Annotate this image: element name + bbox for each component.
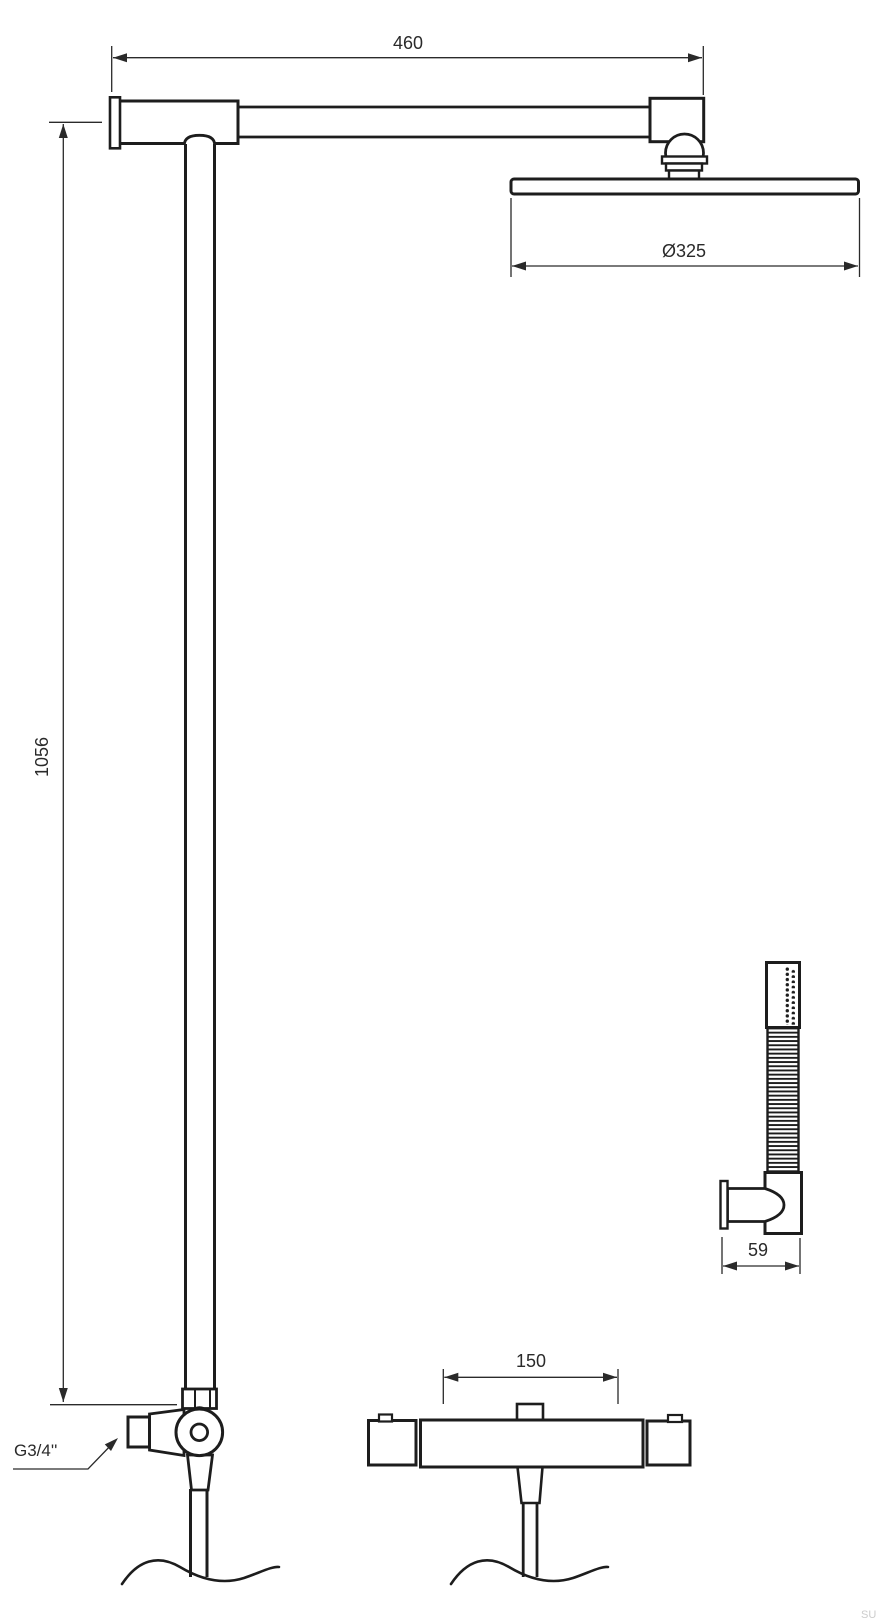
overhead-shower [511,134,859,194]
valve-lower-neck [188,1455,213,1490]
mixer-top-connector [517,1404,543,1421]
arrowhead-left-icon [723,1262,737,1271]
arrowhead-right-icon [785,1262,799,1271]
dimension-column-height-1056: 1056 [32,122,177,1404]
thermostatic-mixer [369,1404,691,1584]
diverter-valve-assembly [122,1389,279,1584]
label-g34-thread: G3/4'' [14,1441,57,1460]
dim-label-59: 59 [748,1240,768,1260]
arrowhead-down-icon [59,1388,68,1402]
dimension-head-diameter-325: Ø325 [511,198,860,277]
leader-connection-thread: G3/4'' [13,1438,118,1469]
dim-label-325: Ø325 [662,241,706,261]
dim-label-460: 460 [393,33,423,53]
riser-pipe [186,144,215,1390]
break-line-left [122,1560,279,1584]
mixer-lower-neck [518,1467,543,1503]
valve-center-hole [191,1424,208,1441]
shower-arm-assembly [110,97,704,148]
handshower-grip-ribs [767,1028,800,1173]
valve-nut [183,1389,217,1409]
arm-tee-body [119,101,238,144]
arrowhead-left-icon [444,1373,458,1382]
mixer-knob-right-tab [668,1415,682,1422]
mixer-knob-right [647,1421,690,1465]
dimension-mixer-150: 150 [443,1351,618,1404]
break-line-right [451,1560,608,1584]
valve-side-inlet [128,1417,150,1447]
wall-flange-top [110,97,120,148]
arrowhead-right-icon [603,1373,617,1382]
nozzle-dots-pattern [784,968,798,1026]
shower-head-plate [511,179,859,194]
mixer-knob-left [369,1421,417,1466]
arrowhead-up-icon [59,124,68,138]
technical-drawing-canvas: 460 1056 Ø325 150 59 [0,0,878,1620]
dim-label-150: 150 [516,1351,546,1371]
dimension-holder-59: 59 [722,1237,800,1274]
arrowhead-right-icon [844,262,858,271]
holder-arm [728,1189,785,1222]
shower-system-technical-drawing: 460 1056 Ø325 150 59 [0,0,878,1620]
watermark-text: SU [861,1609,876,1620]
holder-wall-plate [721,1181,728,1229]
hand-shower-assembly [721,963,802,1234]
mixer-knob-left-tab [379,1415,392,1422]
arrowhead-left-icon [512,262,526,271]
dim-label-1056: 1056 [32,737,52,777]
mixer-body [421,1420,644,1467]
arrowhead-right-icon [688,53,702,62]
dimension-arm-length-460: 460 [112,33,704,95]
arrowhead-left-icon [113,53,127,62]
